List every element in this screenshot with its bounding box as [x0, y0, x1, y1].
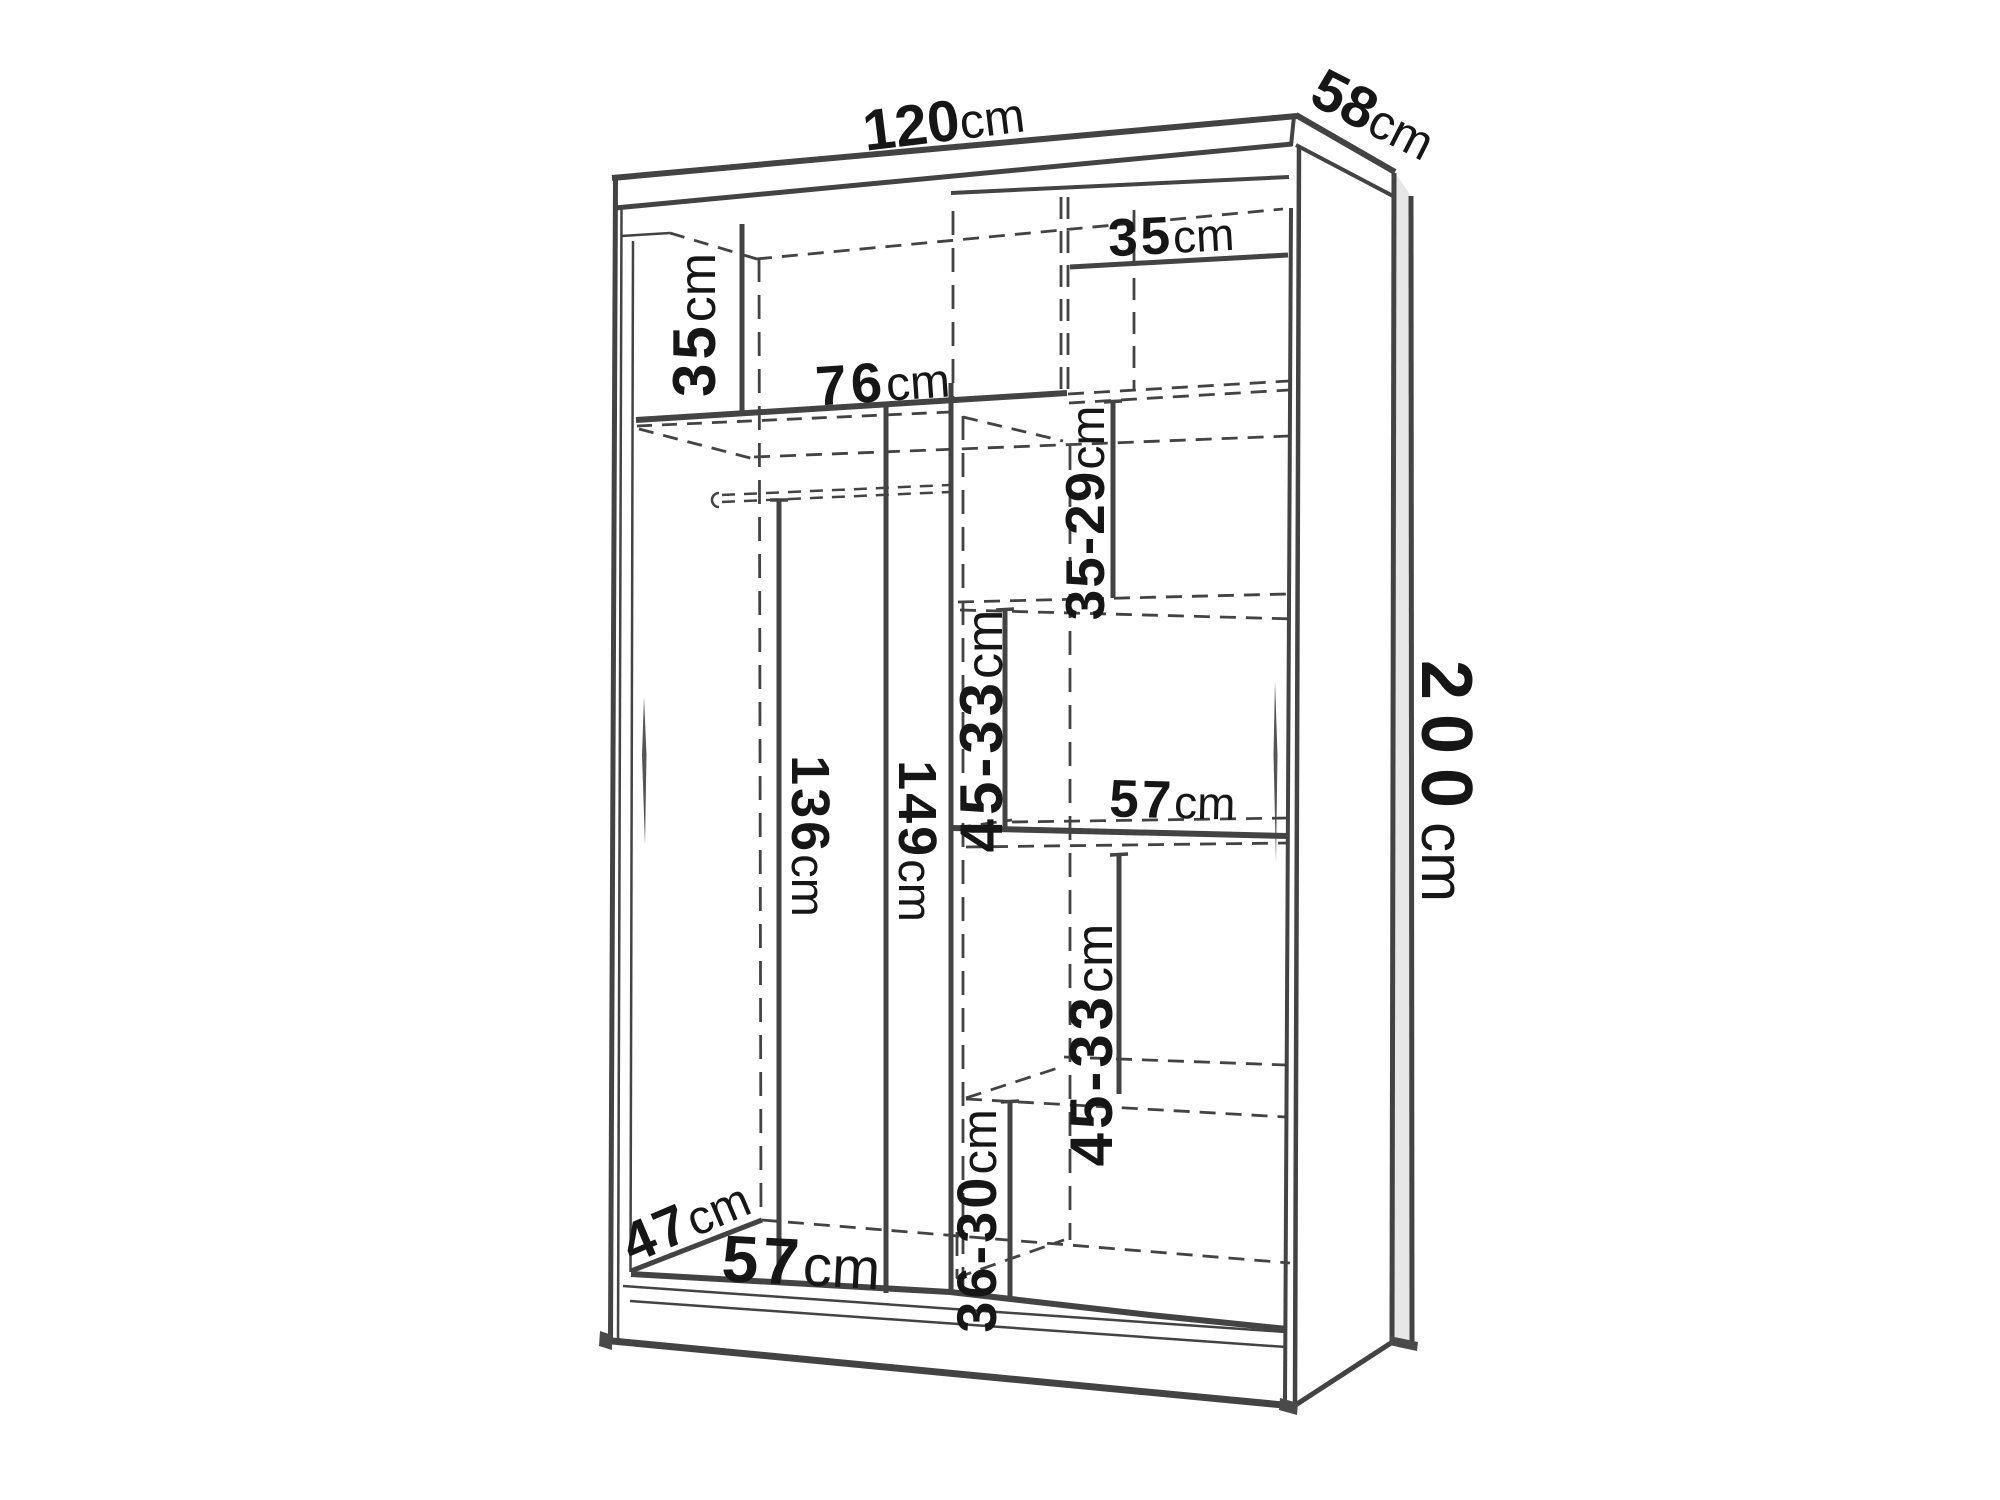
svg-text:36-30cm: 36-30cm: [945, 1109, 1008, 1333]
svg-text:35-29cm: 35-29cm: [1054, 406, 1116, 621]
svg-text:57cm: 57cm: [1109, 769, 1237, 831]
svg-text:149cm: 149cm: [887, 760, 947, 922]
svg-text:76cm: 76cm: [813, 345, 951, 417]
svg-text:136cm: 136cm: [780, 755, 840, 917]
svg-text:35cm: 35cm: [661, 253, 728, 397]
svg-text:45-33cm: 45-33cm: [1058, 924, 1125, 1167]
svg-text:45-33cm: 45-33cm: [948, 610, 1015, 853]
svg-text:200cm: 200cm: [1406, 660, 1486, 902]
svg-text:35cm: 35cm: [1106, 203, 1235, 269]
